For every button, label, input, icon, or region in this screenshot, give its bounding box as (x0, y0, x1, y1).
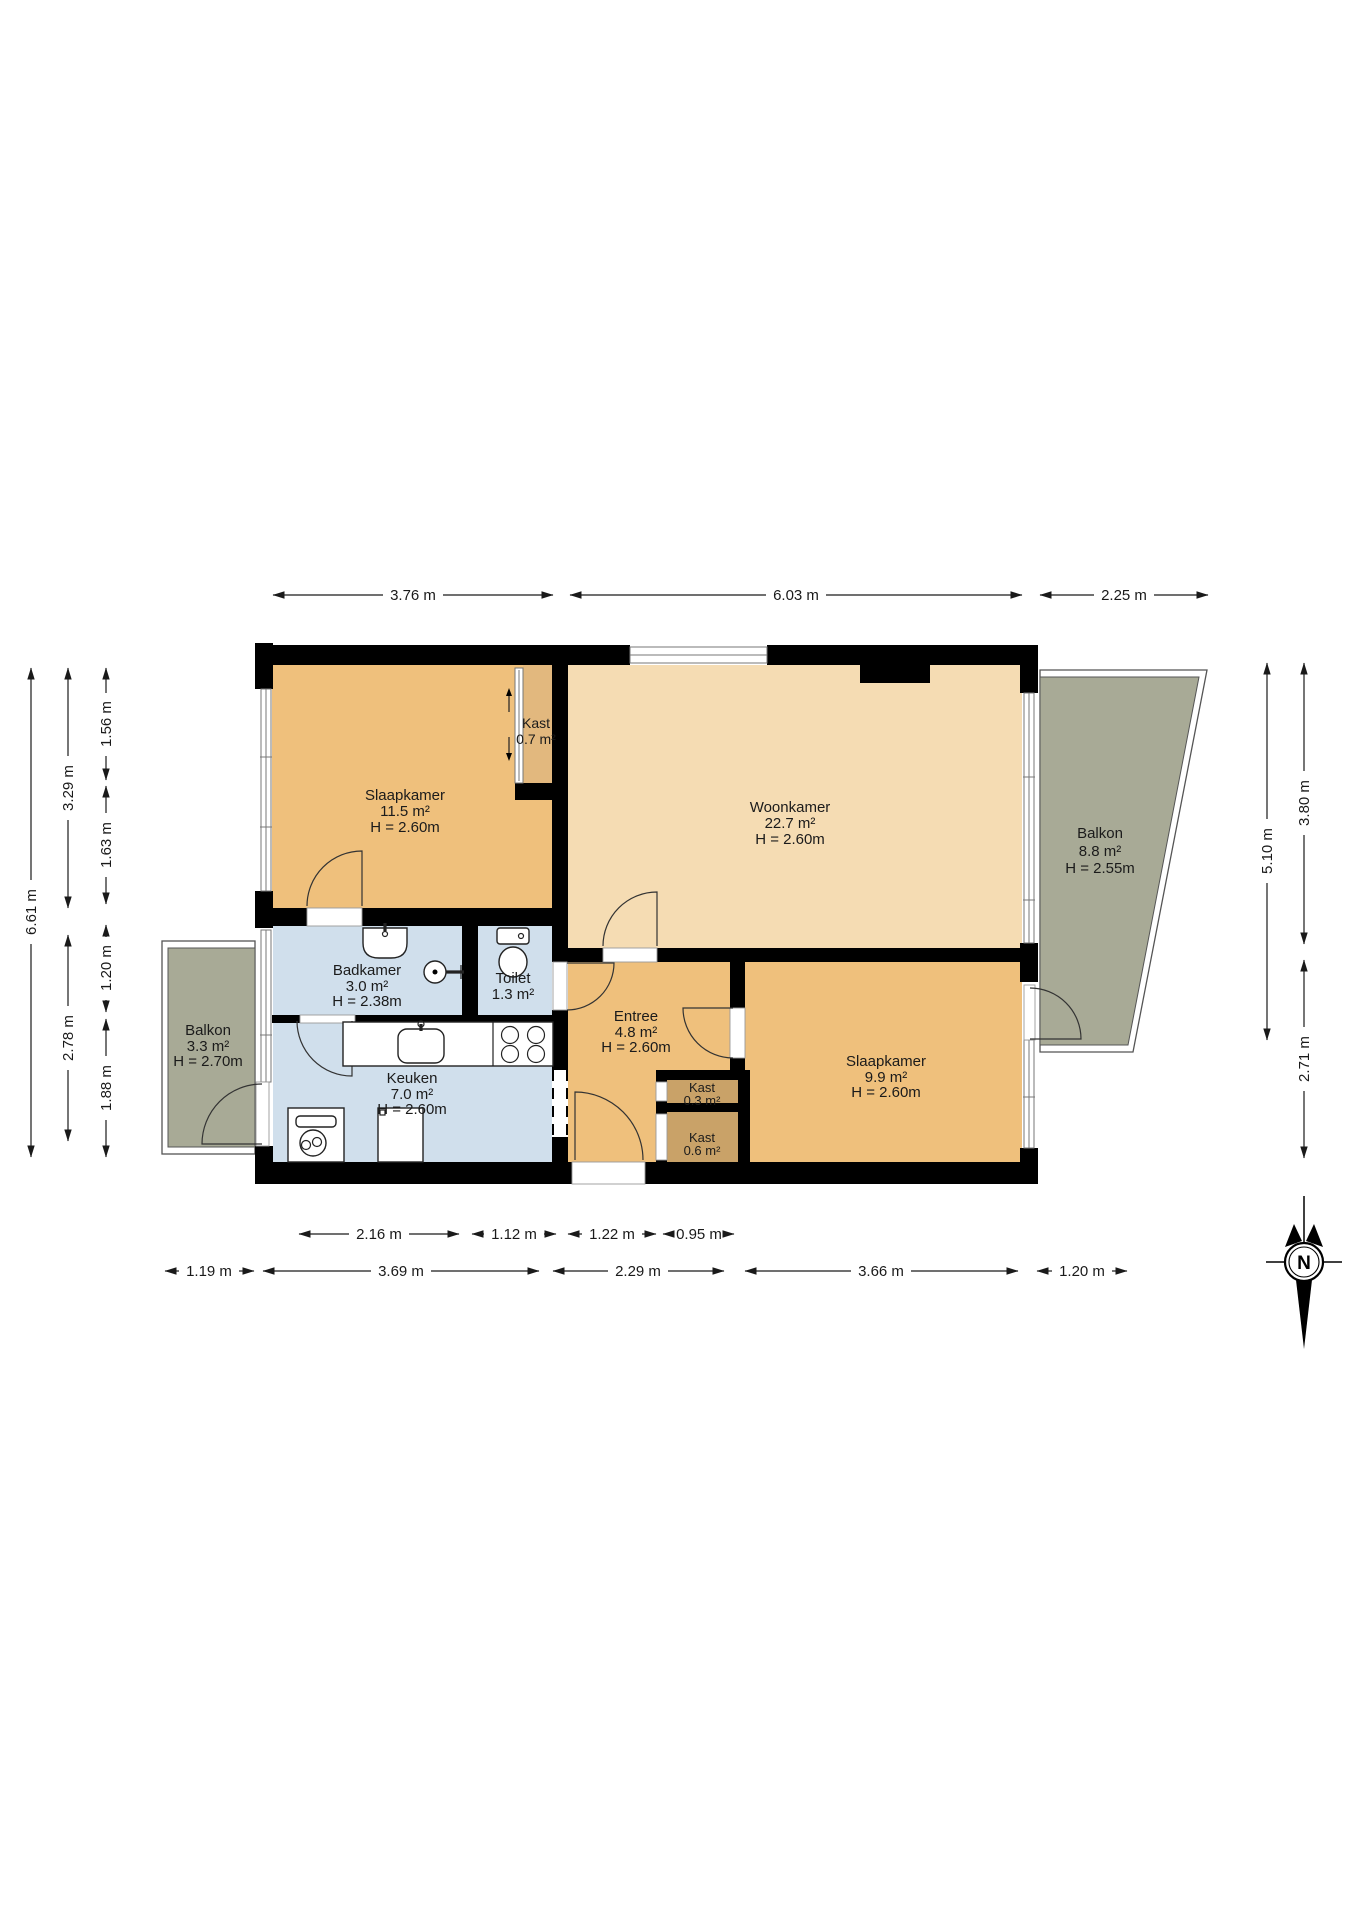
dim-label: 1.22 m (589, 1226, 635, 1243)
dim-label: 0.95 m (676, 1226, 722, 1243)
window-left-kitchen (260, 930, 272, 1082)
doorway-kast-03 (656, 1082, 667, 1101)
room-name: Entree (614, 1008, 658, 1025)
room-name: Kast (522, 715, 550, 731)
room-name: Keuken (387, 1070, 438, 1087)
open-passage (553, 1070, 567, 1137)
dim-label: 6.03 m (773, 587, 819, 604)
floorplan-page: Slaapkamer 11.5 m² H = 2.60m Kast 0.7 m²… (0, 0, 1358, 1920)
room-area: 8.8 m² (1079, 843, 1122, 860)
room-name: Slaapkamer (846, 1053, 926, 1070)
room-area: 1.3 m² (492, 986, 535, 1003)
dimensions-top: 3.76 m 6.03 m 2.25 m (273, 587, 1208, 604)
doorway-balcony-left (256, 1082, 269, 1146)
room-height: H = 2.60m (370, 819, 440, 836)
room-height: H = 2.60m (377, 1101, 447, 1118)
doorway-woonkamer (603, 948, 657, 962)
compass-north-label: N (1297, 1253, 1311, 1274)
room-area: 0.3 m² (684, 1093, 722, 1108)
doorway-slaapkamer-2 (730, 1008, 745, 1058)
doorway-balcony-right (1024, 985, 1035, 1040)
room-area: 11.5 m² (380, 803, 430, 820)
room-height: H = 2.55m (1065, 860, 1135, 877)
room-name: Badkamer (333, 962, 401, 979)
washing-machine-icon (288, 1108, 344, 1162)
dim-label: 2.16 m (356, 1226, 402, 1243)
dim-label: 1.88 m (98, 1065, 115, 1111)
doorway-toilet (553, 962, 567, 1010)
dim-label: 3.76 m (390, 587, 436, 604)
dim-label: 3.80 m (1296, 780, 1313, 826)
window-top (630, 647, 767, 663)
doorway-kast-06 (656, 1114, 667, 1160)
room-area: 0.7 m² (516, 731, 556, 747)
room-name: Toilet (495, 970, 531, 987)
dim-label: 3.29 m (60, 765, 77, 811)
bathroom-sink-icon (363, 923, 407, 958)
kitchen-sink-icon (398, 1029, 444, 1063)
room-area: 22.7 m² (765, 815, 816, 832)
floorplan-drawing: Slaapkamer 11.5 m² H = 2.60m Kast 0.7 m²… (0, 0, 1358, 1920)
compass-icon: N (1266, 1196, 1342, 1349)
dim-label: 1.12 m (491, 1226, 537, 1243)
room-height: H = 2.60m (601, 1039, 671, 1056)
room-height: H = 2.70m (173, 1053, 243, 1070)
room-area: 0.6 m² (684, 1143, 722, 1158)
doorway-entrance (572, 1162, 645, 1184)
dimensions-bottom-outer: 1.19 m 3.69 m 2.29 m 3.66 m 1.20 m (165, 1263, 1127, 1280)
room-name: Balkon (1077, 825, 1123, 842)
dim-label: 5.10 m (1259, 828, 1276, 874)
room-name: Slaapkamer (365, 787, 445, 804)
dim-label: 2.71 m (1296, 1036, 1313, 1082)
room-height: H = 2.38m (332, 993, 402, 1010)
doorway-slaapkamer-1 (307, 908, 362, 926)
room-height: H = 2.60m (851, 1084, 921, 1101)
kitchen-counter (343, 1021, 553, 1066)
dim-label: 1.19 m (186, 1263, 232, 1280)
dimensions-bottom-inner: 2.16 m 1.12 m 1.22 m 0.95 m (299, 1226, 734, 1243)
room-name: Balkon (185, 1022, 231, 1039)
dim-label: 1.20 m (98, 945, 115, 991)
window-right-living (1023, 693, 1035, 943)
dim-label: 2.25 m (1101, 587, 1147, 604)
window-left-bedroom (260, 689, 272, 891)
room-height: H = 2.60m (755, 831, 825, 848)
dimensions-right: 5.10 m 3.80 m 2.71 m (1259, 663, 1313, 1158)
room-label-toilet: Toilet 1.3 m² (492, 970, 535, 1003)
dim-label: 3.66 m (858, 1263, 904, 1280)
dimensions-left: 6.61 m 3.29 m 2.78 m 1.56 m 1.63 m 1.20 … (23, 668, 115, 1157)
dim-label: 2.29 m (615, 1263, 661, 1280)
dim-label: 2.78 m (60, 1015, 77, 1061)
window-right-bedroom (1023, 1040, 1035, 1148)
dim-label: 1.20 m (1059, 1263, 1105, 1280)
dim-label: 3.69 m (378, 1263, 424, 1280)
dim-label: 6.61 m (23, 889, 40, 935)
room-name: Woonkamer (750, 799, 831, 816)
dim-label: 1.56 m (98, 701, 115, 747)
dim-label: 1.63 m (98, 822, 115, 868)
